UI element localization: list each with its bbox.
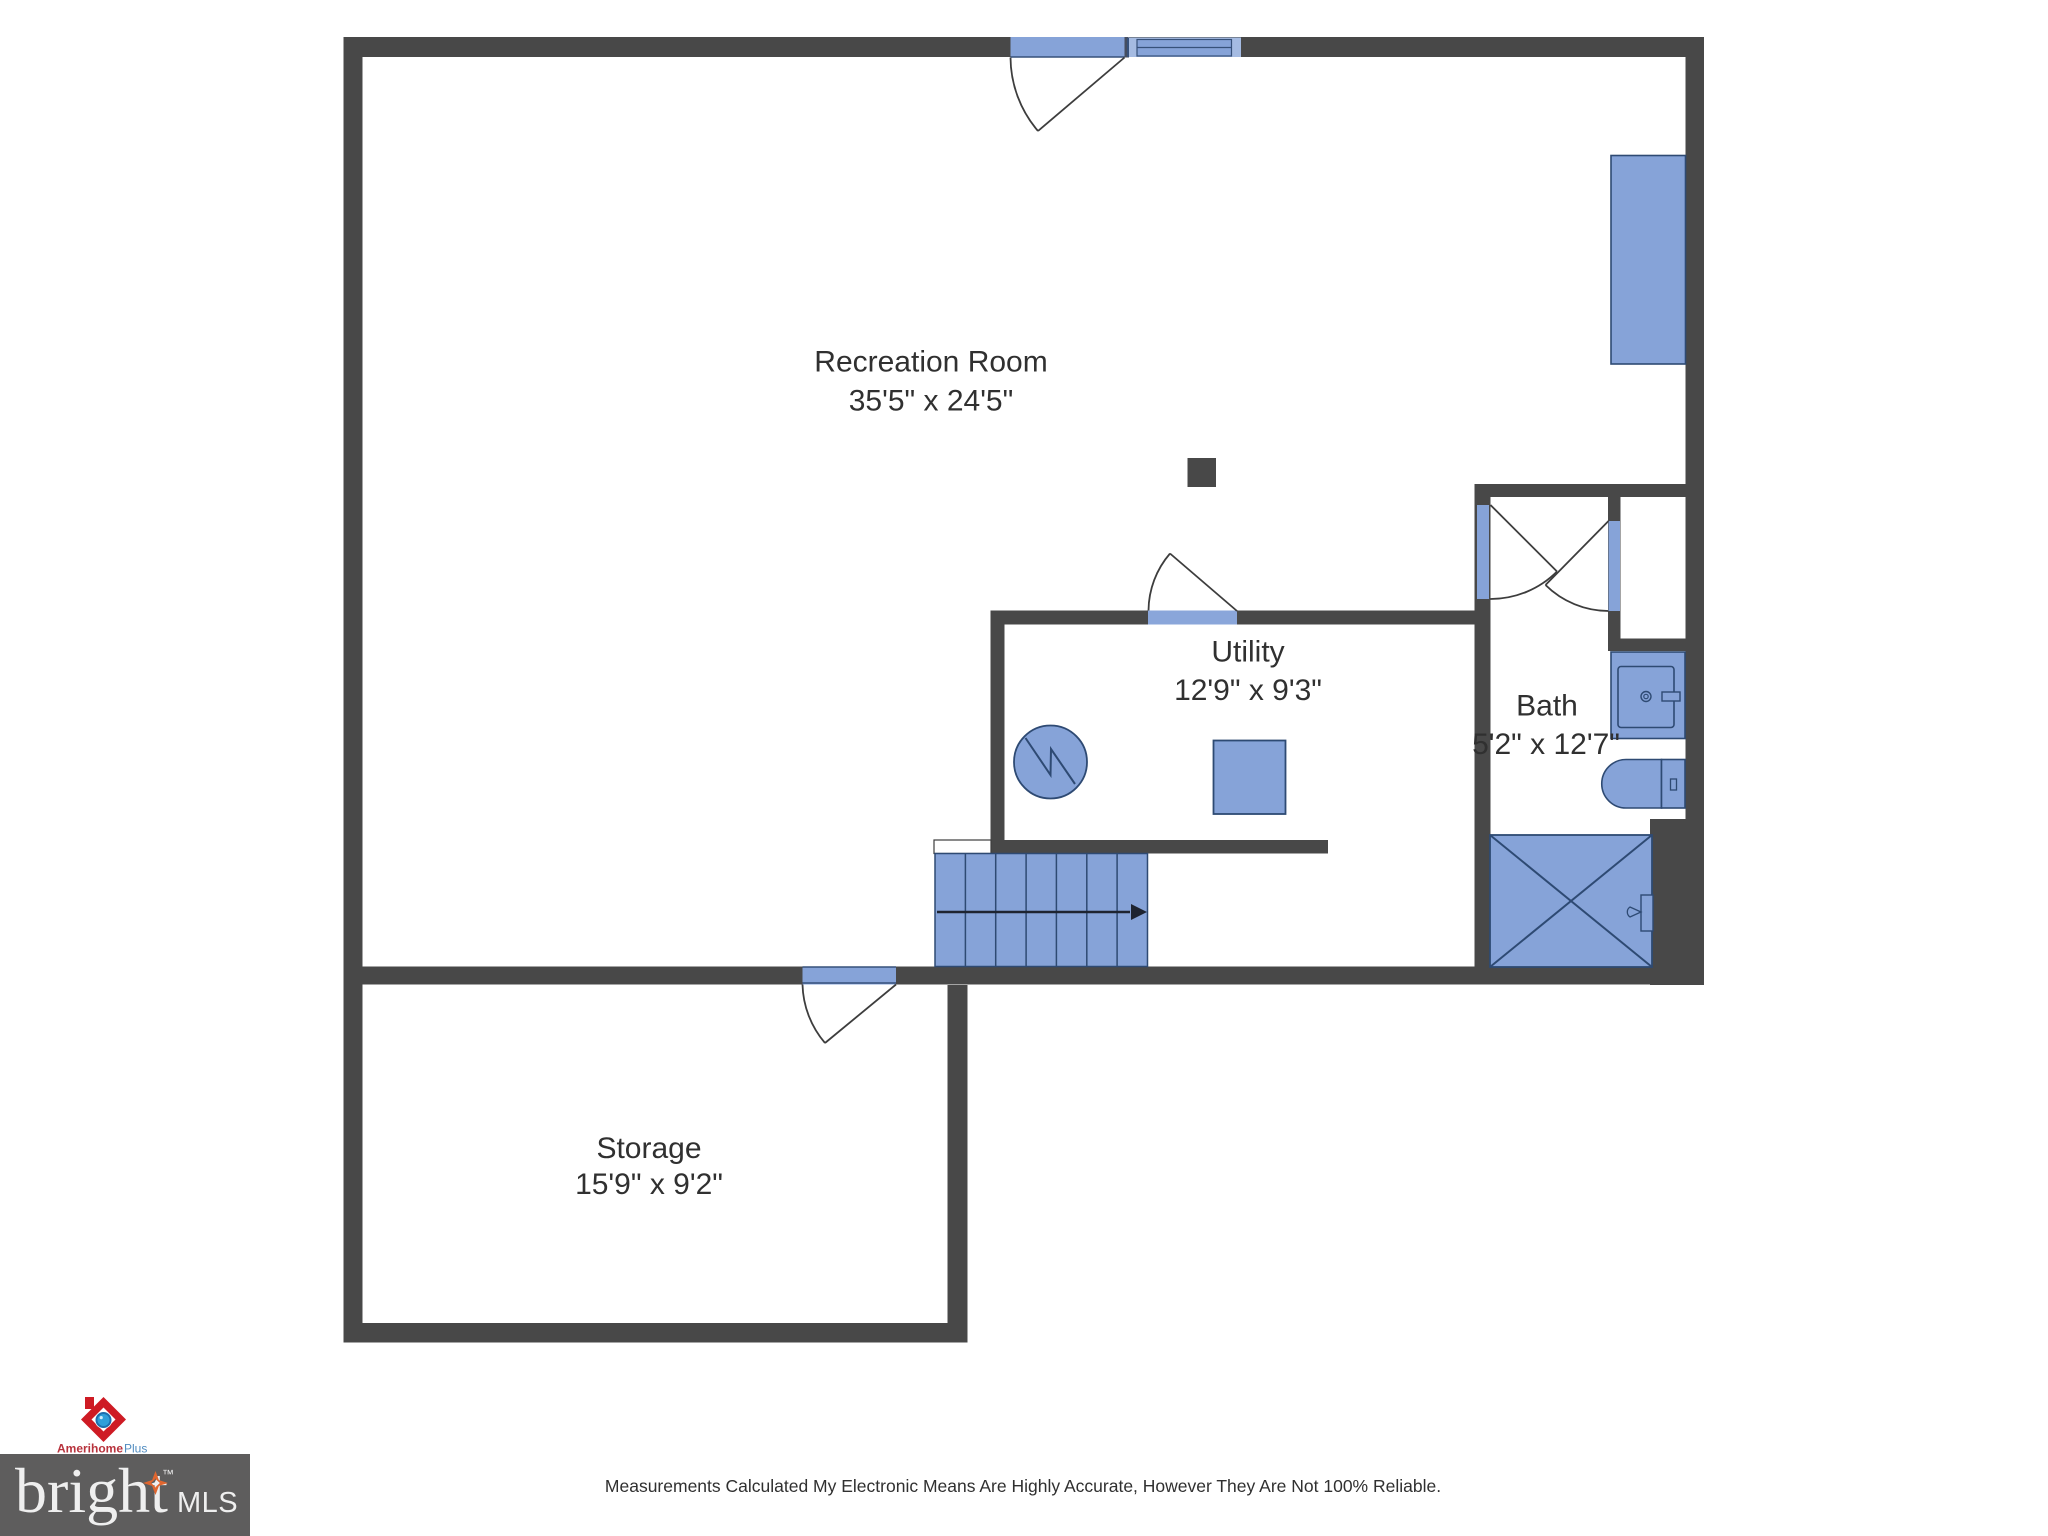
svg-text:Measurements Calculated My Ele: Measurements Calculated My Electronic Me…	[605, 1476, 1441, 1496]
svg-text:35'5" x 24'5": 35'5" x 24'5"	[849, 385, 1014, 418]
svg-text:Recreation Room: Recreation Room	[814, 346, 1047, 379]
svg-text:Utility: Utility	[1211, 636, 1284, 669]
svg-text:12'9" x 9'3": 12'9" x 9'3"	[1174, 674, 1322, 707]
svg-text:™: ™	[162, 1467, 174, 1481]
svg-text:bright: bright	[15, 1455, 168, 1526]
svg-text:5'2" x 12'7": 5'2" x 12'7"	[1472, 728, 1620, 761]
svg-text:MLS: MLS	[177, 1487, 238, 1519]
svg-text:Bath: Bath	[1516, 690, 1578, 723]
svg-text:Storage: Storage	[596, 1132, 701, 1165]
svg-text:Amerihome: Amerihome	[57, 1442, 123, 1456]
svg-text:Plus: Plus	[124, 1442, 147, 1456]
svg-text:15'9" x 9'2": 15'9" x 9'2"	[575, 1168, 723, 1201]
